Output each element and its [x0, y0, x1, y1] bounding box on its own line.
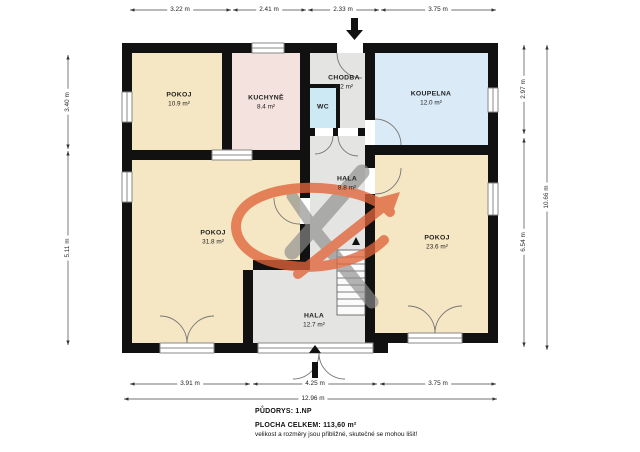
room-pokoj-large-lower — [132, 270, 243, 343]
disclaimer: velikost a rozměry jsou přibližné, skute… — [255, 431, 417, 438]
plan-footer: PŮDORYS: 1.NP PLOCHA CELKEM: 113,60 m² v… — [255, 408, 417, 438]
floor-title: PŮDORYS: 1.NP — [255, 408, 417, 415]
dim-right-2: 6.54 m — [520, 229, 528, 255]
dim-left-2: 5.11 m — [64, 235, 72, 260]
dim-bottom-1: 3.91 m — [177, 380, 203, 388]
dim-bottom-2: 4.25 m — [302, 380, 328, 388]
room-label-hala-upper: HALA 8.8 m² — [337, 175, 357, 192]
room-label-kuchyne: KUCHYNĚ 8.4 m² — [248, 94, 284, 111]
room-label-hala-lower: HALA 12.7 m² — [303, 312, 325, 329]
room-label-pokoj-small: POKOJ 10.9 m² — [166, 91, 191, 108]
dim-top-2: 2.41 m — [256, 6, 282, 14]
dim-bottom-total: 12.96 m — [298, 395, 327, 403]
room-label-pokoj-right: POKOJ 23.6 m² — [424, 234, 449, 251]
dim-top-3: 2.33 m — [330, 6, 356, 14]
room-label-wc: WC — [317, 104, 329, 113]
dim-right-total: 10.66 m — [543, 182, 551, 211]
room-label-chodba: CHODBA 4.2 m² — [328, 74, 360, 91]
dim-top-4: 3.75 m — [425, 6, 451, 14]
dim-right-1: 2.97 m — [520, 76, 528, 102]
dim-bottom-3: 3.75 m — [425, 380, 451, 388]
dim-top-1: 3.22 m — [167, 6, 193, 14]
total-area: PLOCHA CELKEM: 113,60 m² — [255, 422, 417, 429]
entrance-arrow-top — [346, 18, 363, 40]
room-pokoj-large — [132, 160, 300, 270]
floor-plan-page: POKOJ 10.9 m² KUCHYNĚ 8.4 m² CHODBA 4.2 … — [0, 0, 640, 452]
room-label-pokoj-large: POKOJ 31.8 m² — [200, 229, 225, 246]
dim-left-1: 3.40 m — [64, 89, 72, 115]
room-label-koupelna: KOUPELNA 12.0 m² — [411, 90, 452, 107]
